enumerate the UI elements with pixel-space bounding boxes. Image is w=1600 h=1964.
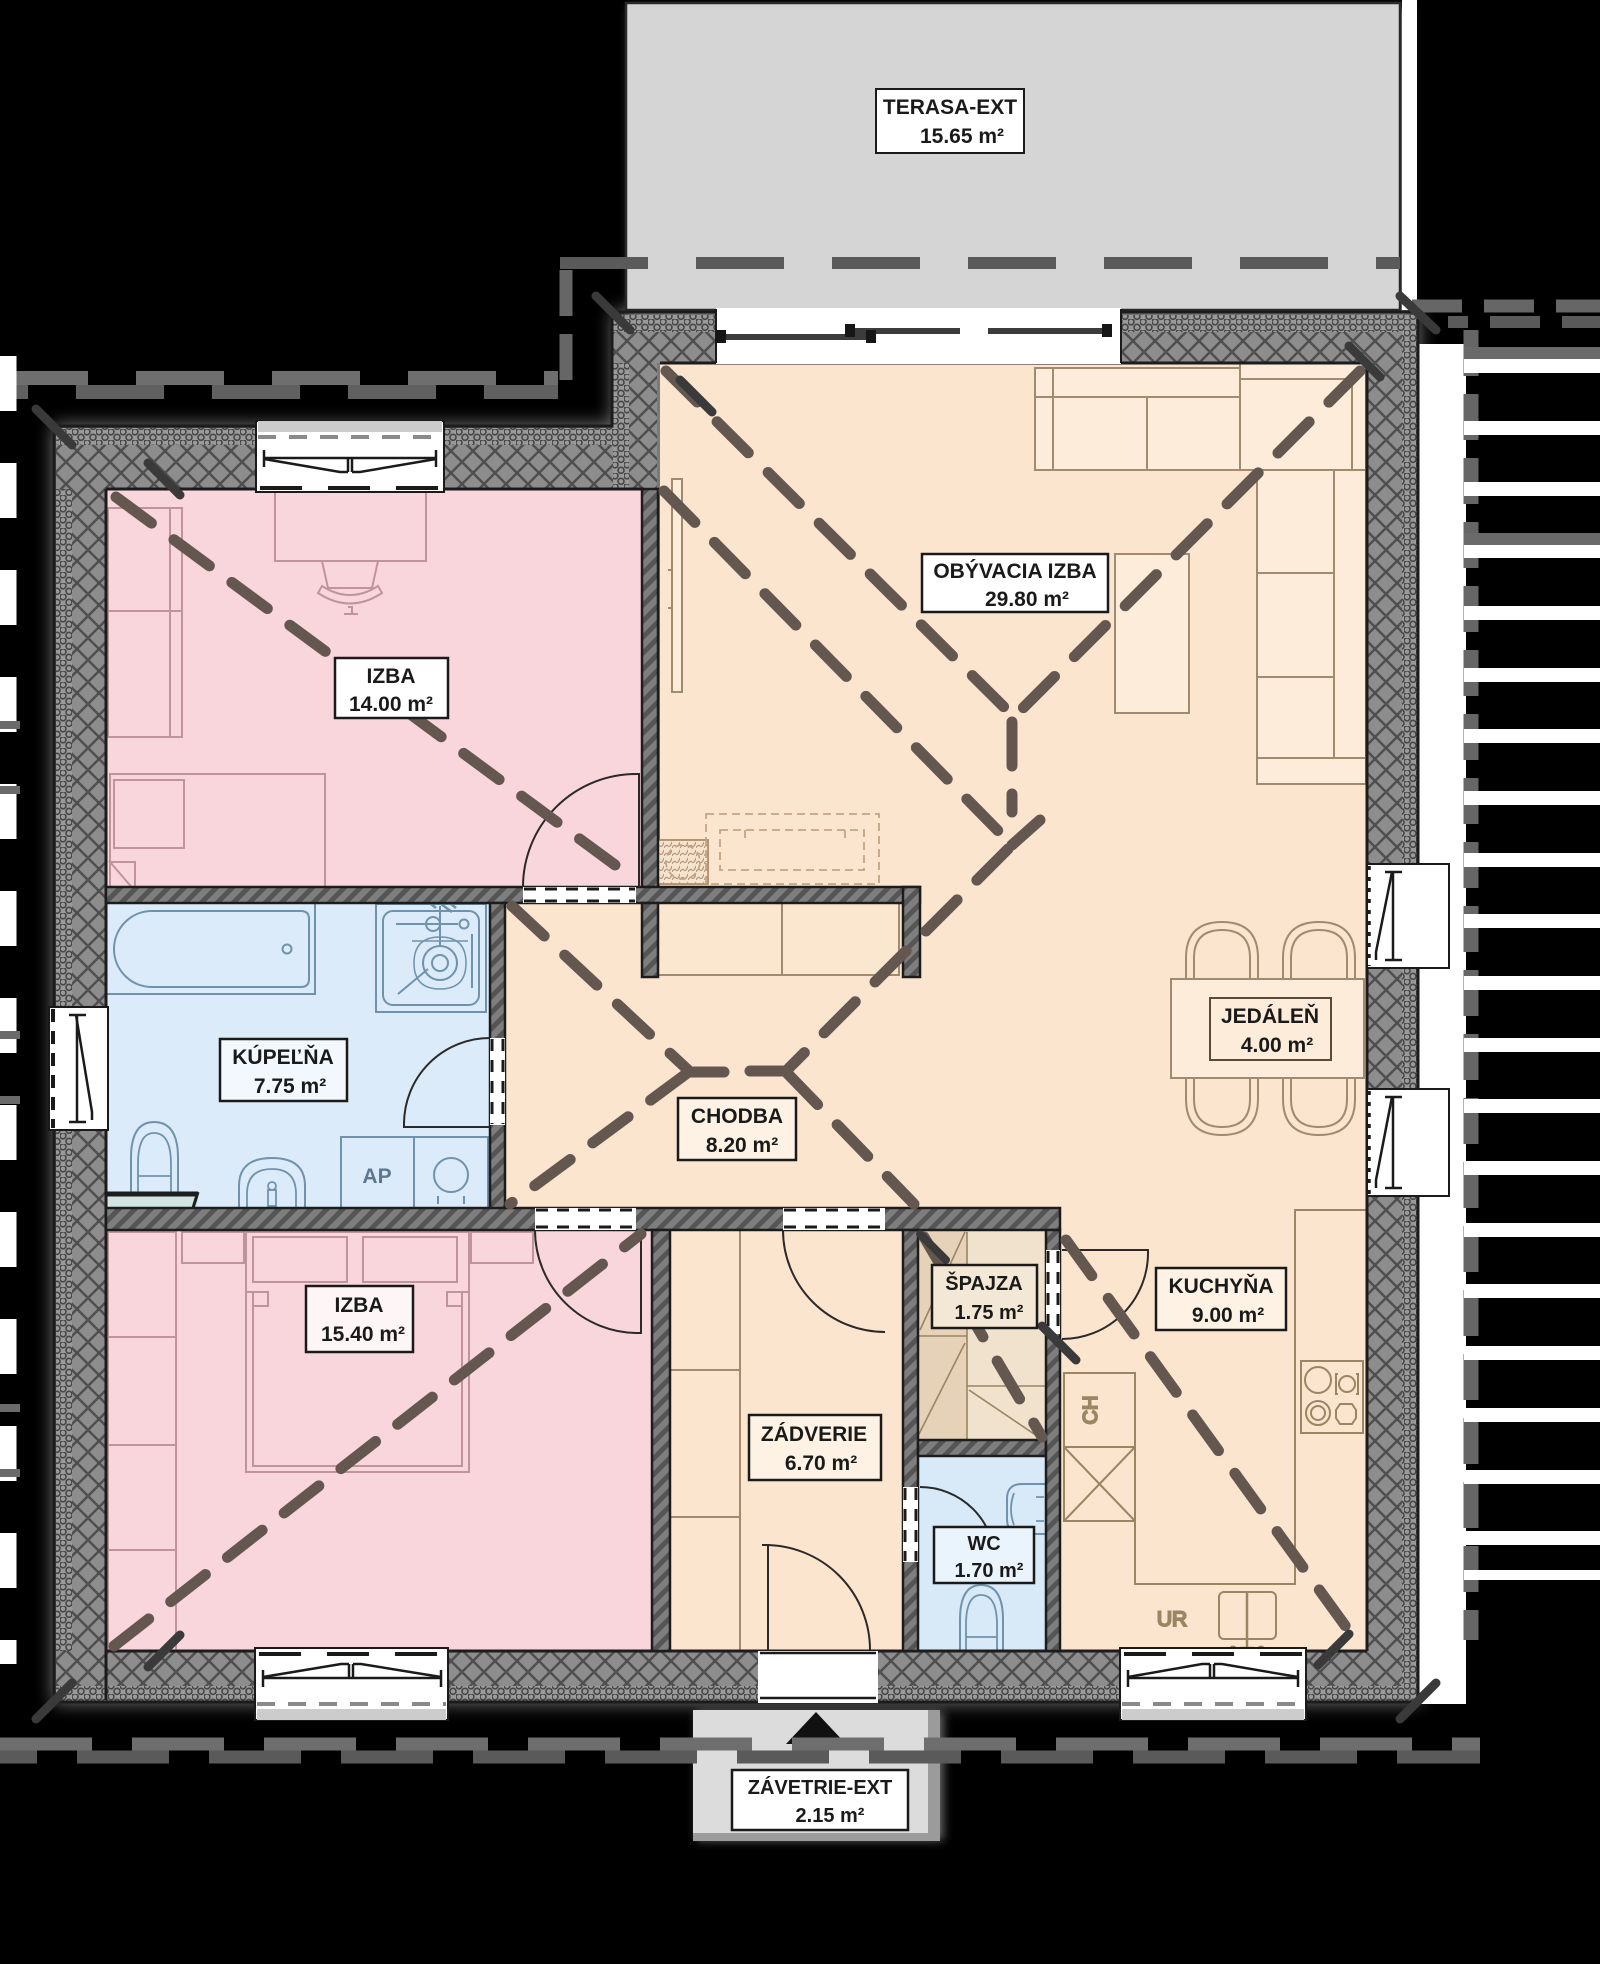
svg-text:14.00 m²: 14.00 m²: [349, 693, 433, 716]
svg-text:TERASA-EXT: TERASA-EXT: [883, 96, 1017, 119]
svg-text:8.20 m²: 8.20 m²: [706, 1134, 778, 1157]
svg-text:KUCHYŇA: KUCHYŇA: [1169, 1274, 1274, 1298]
svg-text:OBÝVACIA IZBA: OBÝVACIA IZBA: [933, 559, 1096, 583]
svg-text:UR: UR: [1157, 1608, 1187, 1631]
svg-text:JEDÁLEŇ: JEDÁLEŇ: [1221, 1004, 1319, 1028]
svg-text:AP: AP: [362, 1165, 391, 1188]
svg-text:KÚPEĽŇA: KÚPEĽŇA: [232, 1045, 334, 1069]
svg-text:9.00 m²: 9.00 m²: [1192, 1304, 1264, 1327]
svg-text:CH: CH: [1080, 1396, 1102, 1425]
svg-text:ZÁVETRIE-EXT: ZÁVETRIE-EXT: [748, 1776, 892, 1799]
svg-text:ZÁDVERIE: ZÁDVERIE: [761, 1423, 867, 1446]
svg-text:7.75 m²: 7.75 m²: [254, 1075, 326, 1098]
svg-text:CHODBA: CHODBA: [691, 1105, 783, 1128]
svg-text:29.80 m²: 29.80 m²: [985, 588, 1069, 611]
svg-text:15.65 m²: 15.65 m²: [920, 125, 1004, 148]
svg-text:1.70 m²: 1.70 m²: [955, 1560, 1024, 1582]
svg-text:15.40 m²: 15.40 m²: [321, 1323, 405, 1346]
svg-text:ŠPAJZA: ŠPAJZA: [945, 1271, 1022, 1295]
svg-text:6.70 m²: 6.70 m²: [785, 1452, 857, 1475]
svg-text:4.00 m²: 4.00 m²: [1241, 1034, 1313, 1057]
svg-text:WC: WC: [967, 1533, 1000, 1555]
svg-text:IZBA: IZBA: [335, 1294, 384, 1317]
svg-text:1.75 m²: 1.75 m²: [955, 1302, 1024, 1324]
svg-text:2.15 m²: 2.15 m²: [796, 1805, 865, 1827]
svg-text:IZBA: IZBA: [367, 665, 416, 688]
